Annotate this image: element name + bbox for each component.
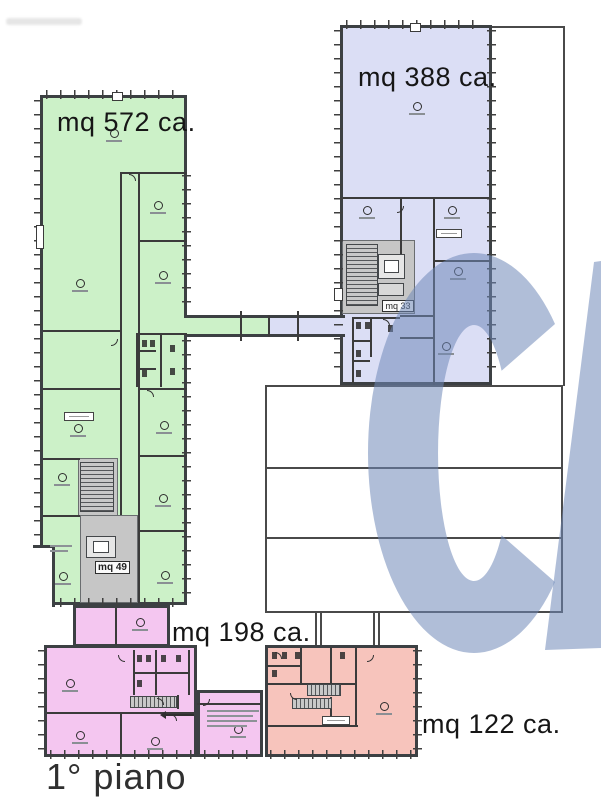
floor-plan-page: mq 572 ca. mq 388 ca. mq 198 ca. mq 122 … (0, 0, 601, 800)
room-symbol-icon (448, 206, 457, 215)
sanitary-fixture (150, 340, 155, 347)
door-arc-icon (268, 652, 282, 666)
tiny-text-line (207, 720, 257, 722)
wall (138, 368, 156, 370)
sanitary-fixture (282, 652, 287, 659)
wall (43, 515, 80, 517)
room-symbol-icon (454, 267, 463, 276)
wall-vent-mark (36, 225, 44, 249)
door-arc-icon (360, 648, 374, 662)
room-symbol-icon (76, 279, 85, 288)
room-symbol-caption (409, 113, 425, 115)
area-label-salmon: mq 122 ca. (422, 709, 561, 740)
sanitary-fixture (356, 322, 361, 329)
room-symbol-icon (74, 424, 83, 433)
sanitary-fixture (356, 370, 361, 377)
room-symbol-caption (72, 290, 88, 292)
window-ticks (60, 598, 182, 607)
window-ticks (413, 650, 422, 752)
wall (352, 317, 400, 319)
staircase (307, 684, 341, 696)
wall (115, 608, 117, 645)
room-symbol-caption (155, 505, 171, 507)
wall (177, 695, 179, 709)
corridor-tick (240, 311, 242, 341)
wall (435, 260, 492, 262)
sanitary-fixture (170, 345, 175, 352)
room-symbol-caption (72, 742, 88, 744)
stair-core-area (80, 515, 138, 603)
tiny-text-line (50, 550, 68, 552)
window-ticks (38, 650, 47, 750)
room-symbol-icon (151, 737, 160, 746)
room-symbol-caption (376, 713, 392, 715)
tiny-text-line (207, 725, 247, 727)
wall (352, 317, 354, 383)
wall (133, 672, 188, 674)
room-symbol-caption (62, 690, 78, 692)
staircase (130, 696, 177, 708)
wall (138, 455, 187, 457)
window-ticks (182, 340, 191, 598)
room-symbol-caption (132, 629, 148, 631)
corridor-tick (268, 315, 270, 337)
room-symbol-icon (159, 494, 168, 503)
area-label-pink: mq 198 ca. (172, 617, 311, 648)
floor-title: 1° piano (46, 756, 187, 798)
wall (120, 172, 122, 515)
window-ticks (182, 175, 191, 307)
room-symbol-icon (154, 201, 163, 210)
wall (300, 647, 302, 683)
wall (188, 650, 190, 695)
wall (138, 240, 187, 242)
wall (267, 665, 300, 667)
direction-arrow (166, 714, 194, 716)
wall (352, 340, 370, 342)
room-symbol-caption (230, 736, 246, 738)
door-arc-icon (140, 390, 154, 404)
area-label-green: mq 572 ca. (57, 107, 196, 138)
wall (138, 530, 187, 532)
stair-core-label-green: mq 49 (95, 561, 130, 574)
sanitary-fixture (176, 655, 181, 662)
wall-vent-mark (112, 92, 123, 101)
sanitary-fixture (272, 670, 277, 677)
sanitary-fixture (388, 325, 393, 332)
room-symbol-caption (150, 212, 166, 214)
tiny-text-line (50, 545, 72, 547)
sanitary-fixture (356, 350, 361, 357)
room-symbol-icon (59, 572, 68, 581)
wall-vent-mark (410, 23, 421, 32)
area-label-blue: mq 388 ca. (358, 62, 497, 93)
room-symbol-caption (147, 748, 163, 750)
window-ticks (334, 30, 343, 380)
room-symbol-icon (66, 679, 75, 688)
room-symbol-caption (55, 583, 71, 585)
tiny-text-line (207, 715, 253, 717)
wall (138, 388, 187, 390)
room-symbol-icon (413, 102, 422, 111)
room-symbol-icon (380, 702, 389, 711)
room-symbol-icon (136, 618, 145, 627)
wall (43, 330, 120, 332)
corridor-tick (297, 311, 299, 341)
room-symbol-caption (444, 217, 460, 219)
room-symbol-caption (54, 484, 70, 486)
small-label-box (322, 716, 350, 725)
sanitary-fixture (340, 652, 345, 659)
room-symbol-caption (106, 140, 122, 142)
room-symbol-caption (70, 435, 86, 437)
window-ticks (34, 100, 43, 540)
sanitary-fixture (137, 680, 142, 687)
service-shaft (378, 283, 404, 296)
staircase (292, 698, 332, 709)
tiny-text-line (207, 710, 259, 712)
room-symbol-caption (359, 217, 375, 219)
room-symbol-caption (157, 582, 173, 584)
sanitary-fixture (137, 655, 142, 662)
room-symbol-icon (363, 206, 372, 215)
room-symbol-caption (155, 282, 171, 284)
room-symbol-caption (438, 353, 454, 355)
door-arc-icon (118, 648, 132, 662)
wall (43, 458, 80, 460)
sanitary-fixture (295, 652, 300, 659)
room-symbol-icon (159, 271, 168, 280)
wall (160, 333, 162, 387)
sanitary-fixture (142, 370, 147, 377)
wall (267, 725, 358, 727)
room-symbol-icon (58, 473, 67, 482)
sanitary-fixture (365, 322, 370, 329)
wall (138, 350, 156, 352)
door-arc-icon (104, 332, 118, 346)
small-label-box (436, 229, 462, 238)
room-symbol-caption (450, 278, 466, 280)
wall (352, 360, 370, 362)
elevator-shaft (378, 254, 405, 279)
wall (120, 172, 187, 174)
wall (400, 315, 433, 317)
wall (433, 197, 435, 385)
door-arc-icon (122, 174, 136, 188)
wall-vent-mark (334, 288, 343, 301)
elevator-shaft (86, 536, 116, 558)
room-symbol-icon (160, 421, 169, 430)
wall (400, 337, 433, 339)
staircase (346, 244, 378, 306)
sanitary-fixture (146, 655, 151, 662)
sanitary-fixture (142, 340, 147, 347)
direction-arrow-head (160, 711, 166, 719)
room-symbol-icon (161, 571, 170, 580)
sanitary-fixture (161, 655, 166, 662)
wall (120, 712, 122, 755)
stair-core-label-blue: mq 33 (382, 300, 414, 312)
window-ticks (270, 750, 414, 759)
room-symbol-icon (76, 731, 85, 740)
room-symbol-caption (156, 432, 172, 434)
staircase (80, 462, 114, 512)
wall (330, 647, 332, 683)
wall (343, 197, 489, 199)
wall (370, 317, 372, 357)
small-label-box (64, 412, 94, 421)
wall (43, 388, 120, 390)
sanitary-fixture (170, 368, 175, 375)
room-symbol-icon (442, 342, 451, 351)
wall (355, 647, 357, 725)
wall (136, 333, 138, 387)
